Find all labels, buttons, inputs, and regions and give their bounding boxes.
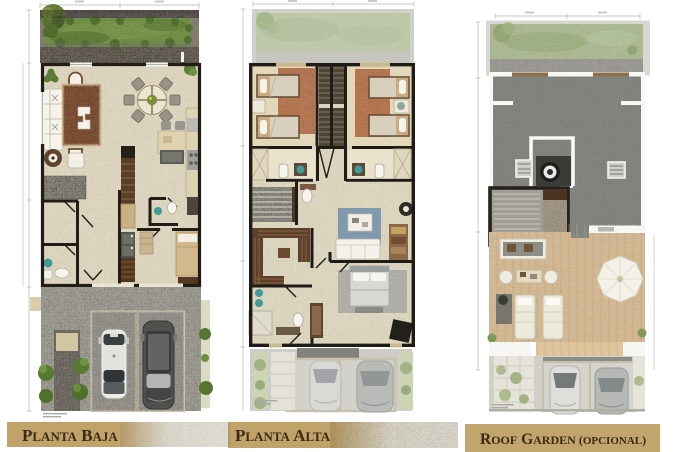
svg-text:PLANTA BAJA: PLANTA BAJA bbox=[22, 426, 118, 445]
svg-text:PLANTA ALTA: PLANTA ALTA bbox=[235, 426, 331, 445]
